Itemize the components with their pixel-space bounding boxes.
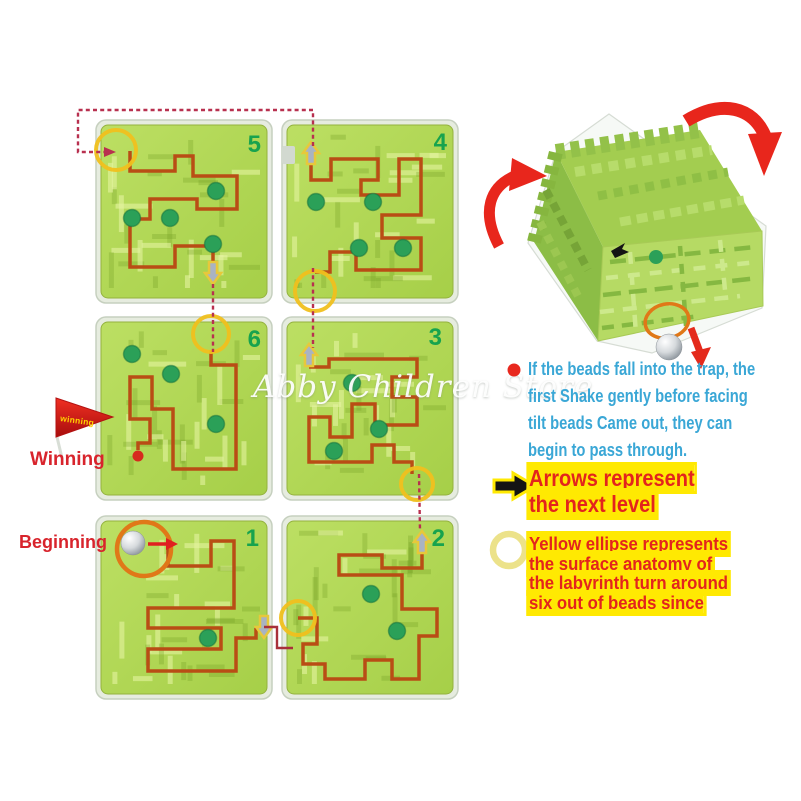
- arrows-note: Arrows represent the next level: [529, 465, 695, 517]
- panel-number: 2: [432, 525, 445, 552]
- note-line: If the beads fall into the trap, the: [528, 356, 755, 383]
- maze-panel-3: 3: [282, 317, 458, 500]
- yellow-ring-icon: [487, 527, 533, 573]
- trap-note: If the beads fall into the trap, the fir…: [528, 356, 755, 464]
- maze-dot: [124, 346, 141, 363]
- note-line: first Shake gently before facing: [528, 383, 755, 410]
- maze-dot: [205, 236, 222, 253]
- note-line: the labyrinth turn around: [529, 574, 728, 594]
- maze-dot: [389, 623, 406, 640]
- maze-panel-2: 2: [281, 516, 458, 699]
- rotate-arrow-right: [748, 132, 782, 176]
- maze-dot: [351, 240, 368, 257]
- maze-dot: [365, 194, 382, 211]
- note-line: begin to pass through.: [528, 437, 755, 464]
- maze-panel-1: 1: [96, 516, 272, 699]
- maze-dot: [371, 421, 388, 438]
- note-line: six out of beads since: [529, 594, 728, 614]
- product-instruction-image: 546312winning Abby Children Store Winnin…: [0, 0, 801, 801]
- maze-panel-4: 4: [282, 120, 458, 311]
- note-line: Yellow ellipse represents: [529, 535, 728, 555]
- note-line: Arrows represent: [529, 465, 695, 491]
- maze-dot: [124, 210, 141, 227]
- note-line: tilt beads Came out, they can: [528, 410, 755, 437]
- maze-dot: [200, 630, 217, 647]
- panel-number: 6: [248, 326, 261, 353]
- panel-number: 1: [246, 525, 259, 552]
- panel-number: 3: [429, 324, 442, 351]
- maze-dot: [308, 194, 325, 211]
- panel-number: 5: [248, 131, 261, 158]
- maze-dot: [208, 183, 225, 200]
- beginning-label: Beginning: [19, 532, 107, 553]
- note-line: the surface anatomy of: [529, 555, 728, 575]
- maze-dot: [363, 586, 380, 603]
- maze-panel-5: 5: [96, 120, 272, 303]
- panel-number: 4: [434, 129, 448, 156]
- maze-dot: [162, 210, 179, 227]
- maze-dot: [326, 443, 343, 460]
- red-dot-icon: [506, 362, 522, 378]
- maze-dot: [208, 416, 225, 433]
- winning-dot: [133, 451, 144, 462]
- maze-dot: [395, 240, 412, 257]
- ellipse-note: Yellow ellipse represents the surface an…: [529, 535, 728, 613]
- maze-dot: [163, 366, 180, 383]
- maze-panel-6: 6: [96, 316, 272, 500]
- winning-label: Winning: [30, 449, 105, 471]
- note-line: the next level: [529, 491, 695, 517]
- cube-illustration: [489, 108, 782, 369]
- metal-ball: [121, 531, 145, 555]
